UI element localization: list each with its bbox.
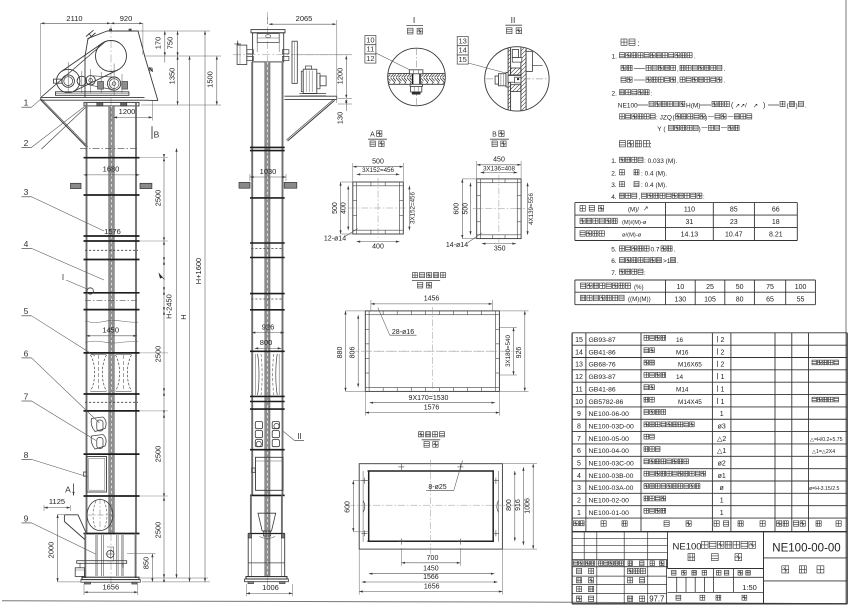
- svg-text:600: 600: [454, 203, 461, 215]
- svg-text:1006: 1006: [262, 583, 279, 592]
- svg-text:1: 1: [720, 510, 724, 517]
- svg-text:1500: 1500: [205, 71, 214, 88]
- svg-text:H(M): H(M): [686, 102, 700, 109]
- svg-text:3: 3: [24, 187, 29, 197]
- svg-text:II: II: [297, 432, 301, 441]
- svg-text:): ): [796, 102, 798, 109]
- svg-text:NE100-01-00: NE100-01-00: [589, 510, 630, 517]
- svg-text:1.: 1.: [612, 53, 618, 60]
- svg-text::: :: [638, 39, 640, 48]
- svg-text:0.7: 0.7: [651, 247, 660, 254]
- svg-text:I: I: [413, 15, 415, 25]
- svg-text:II: II: [511, 15, 516, 25]
- svg-text:10: 10: [676, 284, 684, 291]
- svg-text:500: 500: [372, 158, 384, 165]
- svg-text:65: 65: [766, 296, 774, 303]
- svg-text:.: .: [724, 79, 726, 85]
- svg-text:100: 100: [795, 284, 807, 291]
- svg-text:4.: 4.: [611, 194, 617, 201]
- svg-text:NE100-05-00: NE100-05-00: [589, 436, 630, 443]
- svg-text:1656: 1656: [102, 582, 119, 591]
- svg-text:—: —: [708, 114, 714, 120]
- svg-text:: 0.4 (M).: : 0.4 (M).: [641, 182, 667, 189]
- svg-text:11: 11: [575, 386, 582, 393]
- svg-text:ø/(M)-ø: ø/(M)-ø: [622, 232, 642, 238]
- svg-text:4: 4: [24, 239, 29, 249]
- svg-text:2500: 2500: [153, 522, 162, 539]
- svg-text:2.: 2.: [612, 90, 618, 97]
- svg-text:NE100: NE100: [618, 102, 638, 109]
- svg-text:GB5782-86: GB5782-86: [589, 399, 624, 406]
- svg-text:14: 14: [459, 46, 467, 55]
- svg-text:14-ø14: 14-ø14: [446, 242, 468, 249]
- svg-text:350: 350: [494, 246, 506, 253]
- svg-text:2: 2: [721, 337, 725, 344]
- svg-text:15: 15: [459, 55, 467, 64]
- svg-text:1450: 1450: [102, 325, 119, 334]
- svg-text:I: I: [62, 273, 64, 282]
- svg-text:GB68-76: GB68-76: [589, 362, 616, 369]
- svg-text:Y (: Y (: [657, 126, 666, 133]
- svg-text:GB41-86: GB41-86: [589, 349, 616, 356]
- svg-text:1576: 1576: [424, 405, 440, 412]
- svg-text:1125: 1125: [49, 497, 65, 506]
- svg-text:3: 3: [577, 485, 581, 492]
- svg-text:(: (: [787, 102, 790, 109]
- svg-text:1: 1: [721, 399, 725, 406]
- svg-text:NE100-03C-00: NE100-03C-00: [589, 461, 635, 468]
- svg-text:15: 15: [575, 337, 583, 344]
- svg-text:NE100-03B-00: NE100-03B-00: [589, 473, 634, 480]
- svg-text:ø3: ø3: [718, 423, 726, 430]
- svg-text:66: 66: [772, 207, 780, 214]
- svg-text:△=H/0.2+5.75: △=H/0.2+5.75: [810, 437, 843, 443]
- svg-text:: 0.033 (M).: : 0.033 (M).: [644, 158, 677, 165]
- svg-text:NE100: NE100: [673, 541, 702, 552]
- svg-text:ø=H-3.15/2.5: ø=H-3.15/2.5: [809, 486, 840, 492]
- svg-text:600: 600: [345, 501, 352, 513]
- svg-text:25: 25: [706, 284, 714, 291]
- svg-text:700: 700: [427, 555, 439, 562]
- svg-text:806: 806: [350, 347, 357, 359]
- svg-text:5: 5: [577, 461, 581, 468]
- svg-text:—: —: [702, 126, 708, 132]
- svg-text:31: 31: [686, 219, 694, 226]
- svg-text:11: 11: [367, 45, 375, 54]
- svg-text:800: 800: [260, 338, 273, 347]
- svg-text:18: 18: [772, 219, 780, 226]
- svg-text:1:50: 1:50: [742, 583, 757, 592]
- svg-text:1456: 1456: [424, 296, 440, 303]
- svg-text:△2: △2: [717, 436, 726, 443]
- svg-text:13: 13: [459, 36, 467, 45]
- svg-text:NE100-00-00: NE100-00-00: [772, 543, 840, 555]
- svg-text:500: 500: [332, 202, 339, 214]
- svg-text:.: .: [674, 248, 676, 254]
- svg-text:GB41-86: GB41-86: [589, 386, 616, 393]
- svg-text:—: —: [728, 114, 734, 120]
- svg-text:2500: 2500: [153, 190, 162, 207]
- svg-text:9: 9: [577, 411, 581, 418]
- svg-text:1: 1: [720, 411, 724, 418]
- svg-text:△1: △1: [717, 448, 726, 455]
- svg-text:8.21: 8.21: [769, 232, 783, 239]
- svg-text:926: 926: [262, 322, 275, 331]
- svg-text:1030: 1030: [260, 167, 277, 176]
- svg-text:7: 7: [577, 436, 581, 443]
- svg-text:1: 1: [720, 498, 724, 505]
- svg-text:75: 75: [766, 284, 774, 291]
- svg-text:920: 920: [120, 14, 133, 23]
- svg-text:5.: 5.: [611, 247, 617, 254]
- svg-text:B: B: [492, 132, 497, 139]
- svg-text:M14X45: M14X45: [678, 399, 702, 406]
- svg-text:926: 926: [516, 347, 523, 359]
- svg-text:M16X65: M16X65: [678, 362, 702, 369]
- svg-text:↗: ↗: [753, 103, 758, 109]
- svg-text:2.: 2.: [611, 170, 617, 177]
- svg-text:↗↗/: ↗↗/: [735, 103, 747, 109]
- svg-text:↗: ↗: [643, 206, 648, 213]
- svg-text:.: .: [805, 103, 807, 109]
- svg-text:M16: M16: [676, 349, 689, 356]
- svg-text:,: ,: [677, 67, 679, 73]
- svg-text:H-2450: H-2450: [165, 294, 174, 319]
- svg-text:8: 8: [24, 450, 29, 460]
- svg-text::: :: [703, 195, 705, 201]
- svg-text:880: 880: [337, 347, 344, 359]
- svg-text:: JZQ: : JZQ: [656, 115, 672, 122]
- svg-text:1006: 1006: [525, 498, 532, 514]
- svg-text:130: 130: [336, 112, 345, 125]
- svg-text:97.7: 97.7: [649, 594, 664, 603]
- svg-text:9: 9: [24, 513, 29, 523]
- svg-text:(M)/(M)-ø: (M)/(M)-ø: [622, 220, 647, 226]
- svg-text:2: 2: [577, 498, 581, 505]
- svg-text:NE100-02-00: NE100-02-00: [589, 498, 630, 505]
- svg-text:4X139=556: 4X139=556: [528, 193, 535, 225]
- svg-text:23: 23: [730, 219, 738, 226]
- svg-text:13: 13: [575, 362, 583, 369]
- svg-text:8: 8: [577, 423, 581, 430]
- svg-text:55: 55: [797, 296, 805, 303]
- svg-text:1450: 1450: [423, 566, 439, 573]
- svg-text:1.: 1.: [611, 158, 617, 165]
- svg-text:800: 800: [506, 499, 513, 511]
- svg-text:10: 10: [575, 399, 583, 406]
- svg-text:,: ,: [639, 195, 641, 201]
- svg-text::: :: [650, 140, 652, 149]
- svg-text:1200: 1200: [119, 107, 136, 116]
- svg-text:NE100-03D-00: NE100-03D-00: [589, 423, 635, 430]
- svg-text:400: 400: [340, 202, 347, 214]
- svg-text:>1: >1: [663, 258, 671, 265]
- svg-text:A: A: [65, 485, 71, 495]
- svg-text:1: 1: [721, 386, 725, 393]
- svg-text:16: 16: [676, 337, 684, 344]
- svg-text:NE100-06-00: NE100-06-00: [589, 411, 630, 418]
- svg-text:400: 400: [372, 244, 384, 251]
- svg-text:10: 10: [366, 35, 374, 44]
- svg-text:750: 750: [165, 37, 174, 50]
- svg-text:: 0.4 (M).: : 0.4 (M).: [641, 170, 667, 177]
- svg-text:H+1600: H+1600: [194, 258, 203, 284]
- svg-text:1680: 1680: [103, 165, 120, 174]
- svg-text:2: 2: [721, 349, 725, 356]
- svg-text:3X152=456: 3X152=456: [410, 192, 417, 224]
- svg-text:.: .: [677, 259, 679, 265]
- svg-text:14: 14: [575, 349, 583, 356]
- svg-text:1576: 1576: [104, 227, 121, 236]
- svg-text:(: (: [673, 115, 676, 122]
- svg-text:110: 110: [684, 207, 695, 214]
- svg-text:9X170=1530: 9X170=1530: [409, 395, 449, 402]
- svg-text:GB93-87: GB93-87: [589, 337, 616, 344]
- svg-text:1656: 1656: [424, 584, 440, 591]
- svg-text:14.13: 14.13: [681, 232, 699, 239]
- svg-text:.: .: [694, 54, 696, 60]
- svg-text:4: 4: [577, 473, 581, 480]
- svg-text:NE100-03A-00: NE100-03A-00: [589, 485, 634, 492]
- svg-text:170: 170: [154, 37, 163, 50]
- svg-text:7: 7: [24, 391, 29, 401]
- svg-text:3X152=456: 3X152=456: [362, 167, 394, 174]
- svg-text:): ): [699, 126, 701, 133]
- svg-text:2: 2: [721, 362, 725, 369]
- svg-text:△1=△2X4: △1=△2X4: [812, 449, 835, 455]
- svg-text:2500: 2500: [153, 346, 162, 363]
- svg-text:12-ø14: 12-ø14: [324, 236, 346, 243]
- svg-text:(M)/: (M)/: [628, 206, 639, 213]
- svg-text:2110: 2110: [66, 14, 82, 23]
- svg-text:H: H: [179, 314, 188, 319]
- svg-text:(%): (%): [634, 284, 644, 291]
- svg-text:6: 6: [24, 348, 29, 358]
- svg-text:916: 916: [515, 499, 522, 511]
- svg-text:450: 450: [493, 157, 505, 164]
- svg-text:NE100-04-00: NE100-04-00: [589, 448, 630, 455]
- svg-text:2000: 2000: [47, 542, 56, 559]
- svg-text:850: 850: [142, 557, 151, 570]
- svg-text:500: 500: [463, 203, 470, 215]
- svg-text:(: (: [731, 102, 734, 109]
- svg-text:105: 105: [704, 296, 716, 303]
- svg-text:): ): [763, 102, 765, 109]
- svg-text:85: 85: [730, 207, 738, 214]
- svg-text:3.: 3.: [611, 182, 617, 189]
- svg-text:1350: 1350: [167, 68, 176, 85]
- svg-text:A: A: [370, 132, 375, 139]
- svg-text:6: 6: [577, 448, 581, 455]
- svg-text:((M)(M)): ((M)(M)): [628, 296, 651, 303]
- svg-text:2: 2: [24, 138, 29, 148]
- svg-text:ø1: ø1: [718, 473, 726, 480]
- svg-text:5: 5: [24, 306, 29, 316]
- svg-text:130: 130: [675, 296, 687, 303]
- svg-text:2065: 2065: [296, 14, 313, 23]
- svg-text:M14: M14: [676, 386, 689, 393]
- svg-text:8-ø25: 8-ø25: [428, 484, 446, 491]
- svg-text:10.47: 10.47: [725, 232, 743, 239]
- svg-text:12: 12: [575, 374, 583, 381]
- svg-text:ø2: ø2: [718, 461, 726, 468]
- svg-text:1: 1: [24, 98, 29, 108]
- svg-text:80: 80: [736, 296, 744, 303]
- svg-text:6.: 6.: [611, 258, 617, 265]
- svg-text::: :: [651, 91, 653, 97]
- svg-text:ø: ø: [720, 485, 725, 492]
- svg-text:1566: 1566: [423, 574, 439, 581]
- svg-text:2500: 2500: [153, 446, 162, 463]
- svg-text::: :: [644, 271, 646, 277]
- svg-text:7.: 7.: [611, 270, 617, 277]
- svg-text:1: 1: [577, 510, 581, 517]
- svg-text:1: 1: [721, 374, 725, 381]
- svg-text:3X136=408: 3X136=408: [483, 165, 515, 172]
- svg-text:14: 14: [676, 374, 684, 381]
- svg-text:,: ,: [677, 79, 679, 85]
- svg-text:): ): [705, 115, 707, 122]
- svg-text:50: 50: [736, 284, 744, 291]
- svg-text:3X180=540: 3X180=540: [505, 335, 512, 367]
- svg-text:—: —: [721, 126, 727, 132]
- svg-text:GB93-87: GB93-87: [589, 374, 616, 381]
- svg-text:1200: 1200: [336, 68, 345, 85]
- svg-text:12: 12: [366, 54, 374, 63]
- svg-text:.: .: [724, 67, 726, 73]
- svg-text:B: B: [154, 130, 160, 140]
